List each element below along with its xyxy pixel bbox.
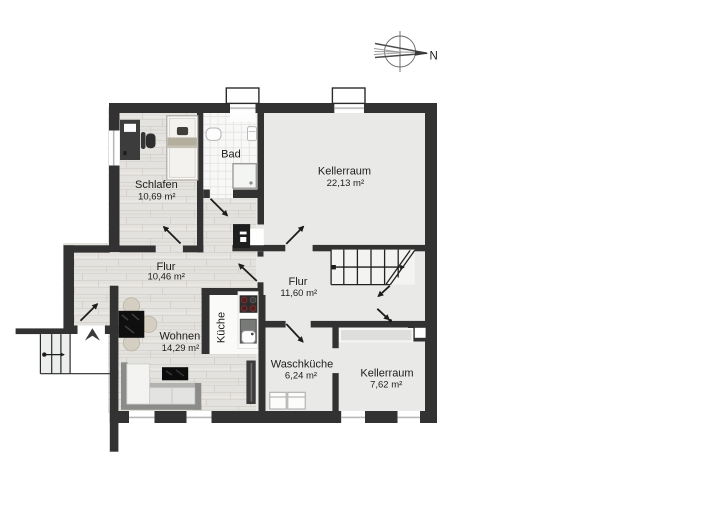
svg-text:Schlafen: Schlafen <box>135 179 178 191</box>
svg-text:22,13 m²: 22,13 m² <box>327 178 365 189</box>
svg-text:Kellerraum: Kellerraum <box>318 165 371 177</box>
svg-text:14,29 m²: 14,29 m² <box>162 343 200 354</box>
svg-text:10,46 m²: 10,46 m² <box>147 272 185 283</box>
svg-text:11,60 m²: 11,60 m² <box>280 288 317 299</box>
svg-text:Bad: Bad <box>221 148 241 160</box>
svg-text:Flur: Flur <box>289 276 308 288</box>
svg-text:Wohnen: Wohnen <box>160 331 201 343</box>
svg-text:7,62 m²: 7,62 m² <box>370 379 402 390</box>
svg-text:Küche: Küche <box>216 312 228 343</box>
svg-text:6,24 m²: 6,24 m² <box>285 370 317 381</box>
svg-text:Kellerraum: Kellerraum <box>360 367 413 379</box>
svg-text:N: N <box>430 51 438 63</box>
svg-text:Waschküche: Waschküche <box>271 358 334 370</box>
svg-text:10,69 m²: 10,69 m² <box>138 191 176 202</box>
